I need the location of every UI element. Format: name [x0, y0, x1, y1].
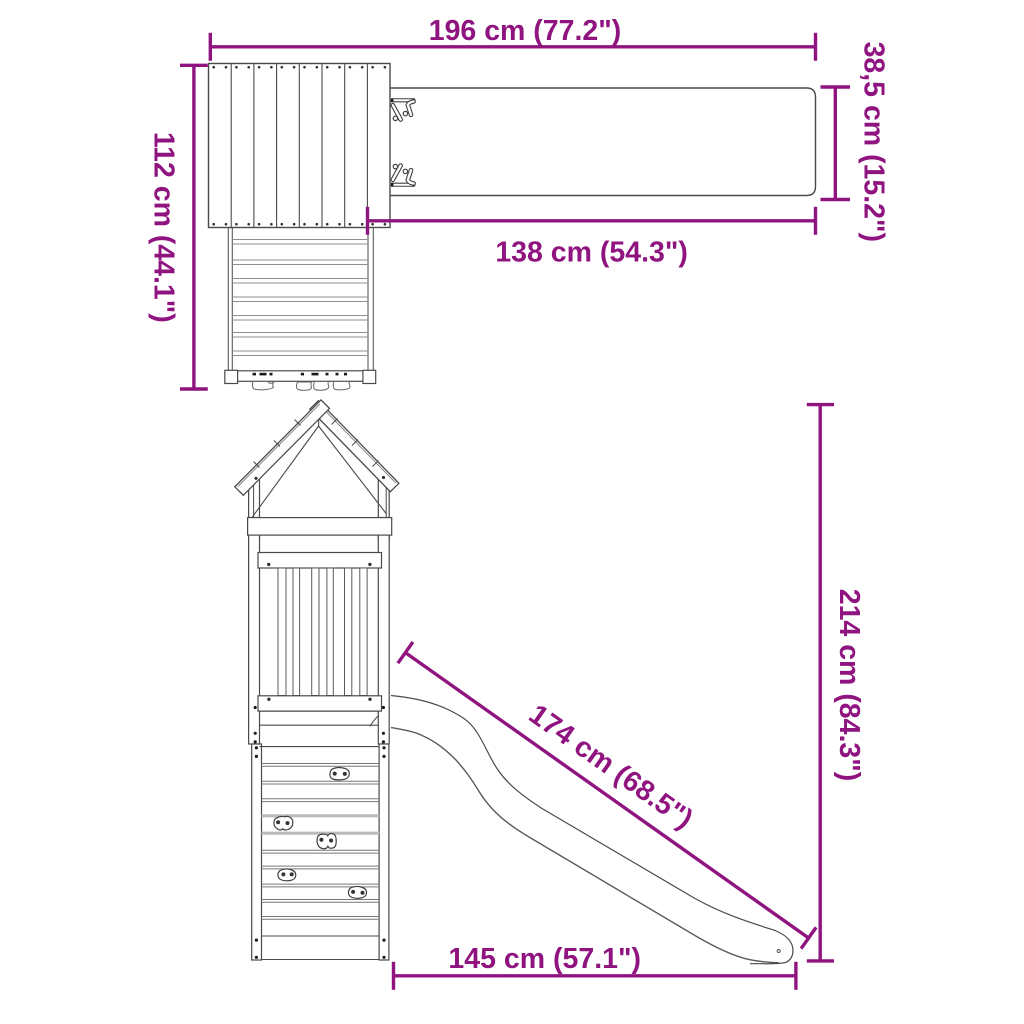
svg-text:196 cm (77.2"): 196 cm (77.2"): [429, 15, 622, 47]
svg-text:38,5 cm (15.2"): 38,5 cm (15.2"): [857, 42, 889, 242]
svg-text:214 cm (84.3"): 214 cm (84.3"): [833, 589, 865, 782]
svg-text:112 cm (44.1"): 112 cm (44.1"): [148, 132, 180, 323]
svg-text:145 cm (57.1"): 145 cm (57.1"): [448, 943, 641, 975]
svg-text:138 cm (54.3"): 138 cm (54.3"): [495, 237, 688, 269]
